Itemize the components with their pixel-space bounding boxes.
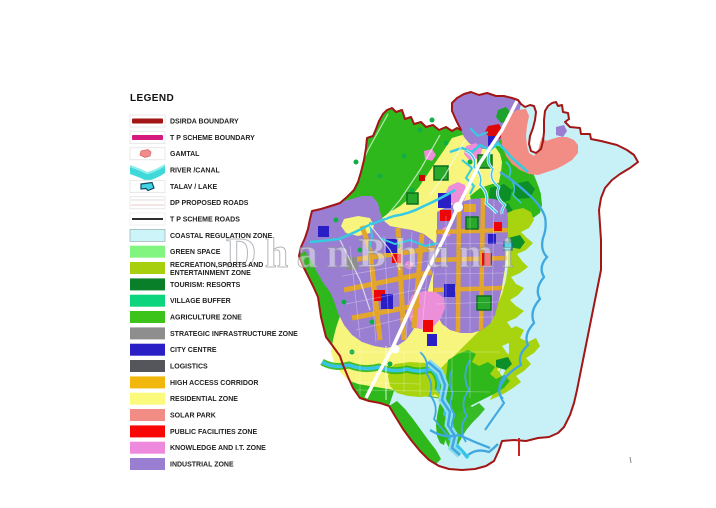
svg-text:GAMTAL: GAMTAL <box>170 151 200 158</box>
svg-text:AGRICULTURE ZONE: AGRICULTURE ZONE <box>170 315 242 322</box>
svg-text:DSIRDA BOUNDARY: DSIRDA BOUNDARY <box>170 119 239 126</box>
svg-text:RECREATION,SPORTS AND: RECREATION,SPORTS AND <box>170 262 263 269</box>
svg-text:RIVER /CANAL: RIVER /CANAL <box>170 168 221 175</box>
svg-text:GREEN SPACE: GREEN SPACE <box>170 249 221 256</box>
svg-text:INDUSTRIAL ZONE: INDUSTRIAL ZONE <box>170 462 234 469</box>
svg-text:T P SCHEME ROADS: T P SCHEME ROADS <box>170 217 240 224</box>
svg-text:STRATEGIC INFRASTRUCTURE ZONE: STRATEGIC INFRASTRUCTURE ZONE <box>170 331 298 338</box>
svg-text:COASTAL REGULATION ZONE: COASTAL REGULATION ZONE <box>170 233 273 240</box>
svg-text:ENTERTAINMENT ZONE: ENTERTAINMENT ZONE <box>170 270 251 277</box>
svg-text:VILLAGE BUFFER: VILLAGE BUFFER <box>170 298 231 305</box>
svg-text:PUBLIC FACILITIES ZONE: PUBLIC FACILITIES ZONE <box>170 429 257 436</box>
svg-text:LEGEND: LEGEND <box>130 93 174 104</box>
svg-text:SOLAR PARK: SOLAR PARK <box>170 413 216 420</box>
svg-text:HIGH ACCESS CORRIDOR: HIGH ACCESS CORRIDOR <box>170 380 258 387</box>
svg-text:RESIDENTIAL ZONE: RESIDENTIAL ZONE <box>170 396 238 403</box>
svg-text:TOURISM: RESORTS: TOURISM: RESORTS <box>170 282 241 289</box>
svg-text:CITY CENTRE: CITY CENTRE <box>170 347 217 354</box>
svg-text:T P SCHEME BOUNDARY: T P SCHEME BOUNDARY <box>170 135 255 142</box>
svg-text:KNOWLEDGE AND I.T. ZONE: KNOWLEDGE AND I.T. ZONE <box>170 445 266 452</box>
svg-text:LOGISTICS: LOGISTICS <box>170 364 208 371</box>
svg-text:TALAV / LAKE: TALAV / LAKE <box>170 184 218 191</box>
svg-text:DP PROPOSED ROADS: DP PROPOSED ROADS <box>170 200 249 207</box>
